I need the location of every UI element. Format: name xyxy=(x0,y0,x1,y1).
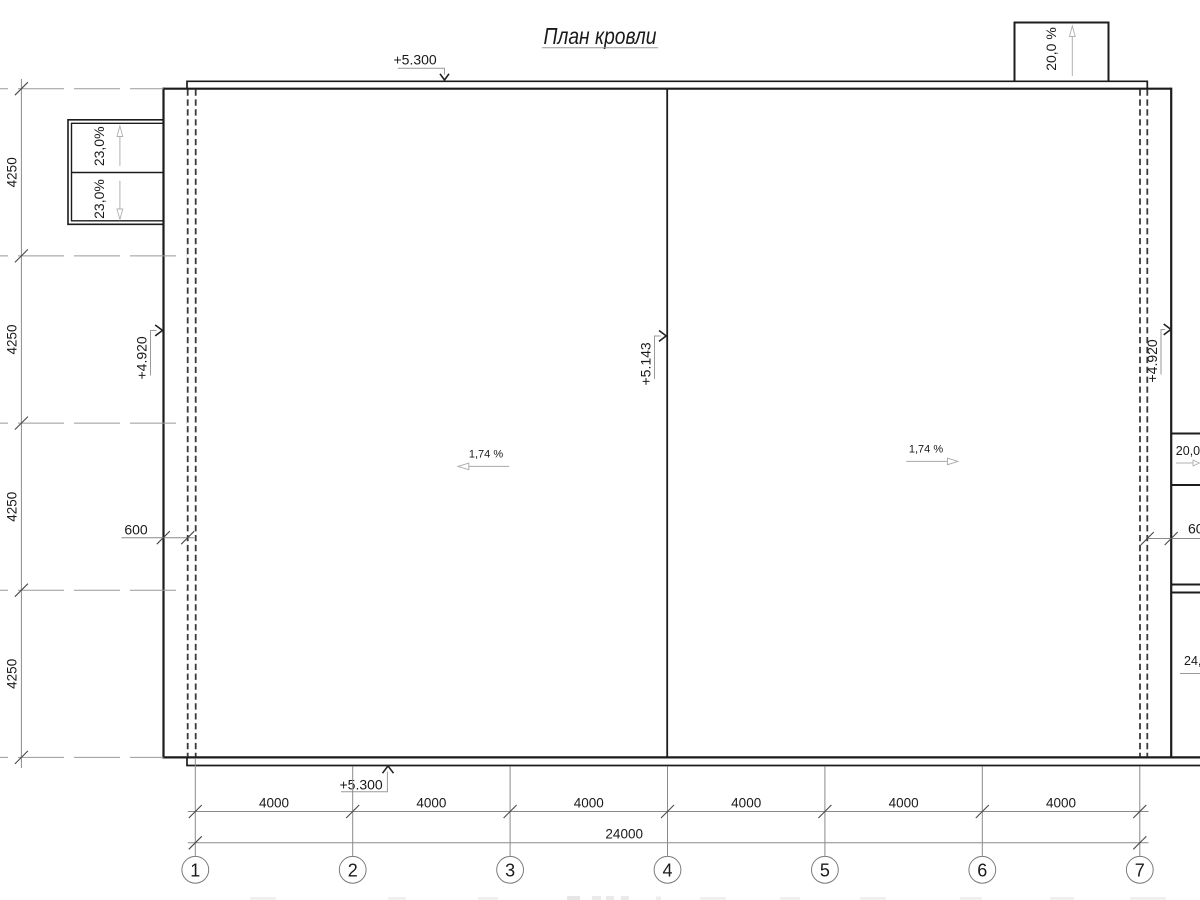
svg-text:4000: 4000 xyxy=(416,795,446,810)
svg-text:+5.143: +5.143 xyxy=(638,342,654,385)
svg-text:+5.300: +5.300 xyxy=(340,777,383,793)
svg-text:20,0 %: 20,0 % xyxy=(1176,444,1200,458)
svg-text:1,74 %: 1,74 % xyxy=(909,444,943,456)
svg-text:План кровли: План кровли xyxy=(544,23,657,49)
svg-text:3: 3 xyxy=(505,860,515,880)
svg-text:+4.920: +4.920 xyxy=(134,336,150,379)
svg-text:4250: 4250 xyxy=(5,324,20,354)
svg-text:+5.300: +5.300 xyxy=(394,52,437,68)
svg-text:4000: 4000 xyxy=(574,795,604,810)
svg-text:4250: 4250 xyxy=(5,157,20,187)
svg-text:7: 7 xyxy=(1135,860,1145,880)
svg-text:5: 5 xyxy=(820,860,830,880)
svg-text:4000: 4000 xyxy=(1046,795,1076,810)
svg-text:1: 1 xyxy=(190,860,200,880)
svg-text:4000: 4000 xyxy=(889,795,919,810)
svg-text:24000: 24000 xyxy=(605,827,643,842)
svg-text:23,0%: 23,0% xyxy=(91,126,107,166)
svg-text:600: 600 xyxy=(1188,521,1200,537)
svg-text:4000: 4000 xyxy=(731,795,761,810)
svg-text:23,0%: 23,0% xyxy=(91,179,107,219)
svg-text:+4.920: +4.920 xyxy=(1144,339,1160,382)
svg-text:4250: 4250 xyxy=(5,659,20,689)
svg-text:20,0 %: 20,0 % xyxy=(1043,27,1059,71)
svg-text:600: 600 xyxy=(124,522,148,538)
svg-text:4: 4 xyxy=(662,860,672,880)
svg-text:2: 2 xyxy=(348,860,358,880)
svg-text:4250: 4250 xyxy=(5,492,20,522)
svg-text:6: 6 xyxy=(977,860,987,880)
svg-text:1,74 %: 1,74 % xyxy=(469,449,503,461)
svg-text:24,7: 24,7 xyxy=(1184,654,1200,668)
svg-text:4000: 4000 xyxy=(259,795,289,810)
